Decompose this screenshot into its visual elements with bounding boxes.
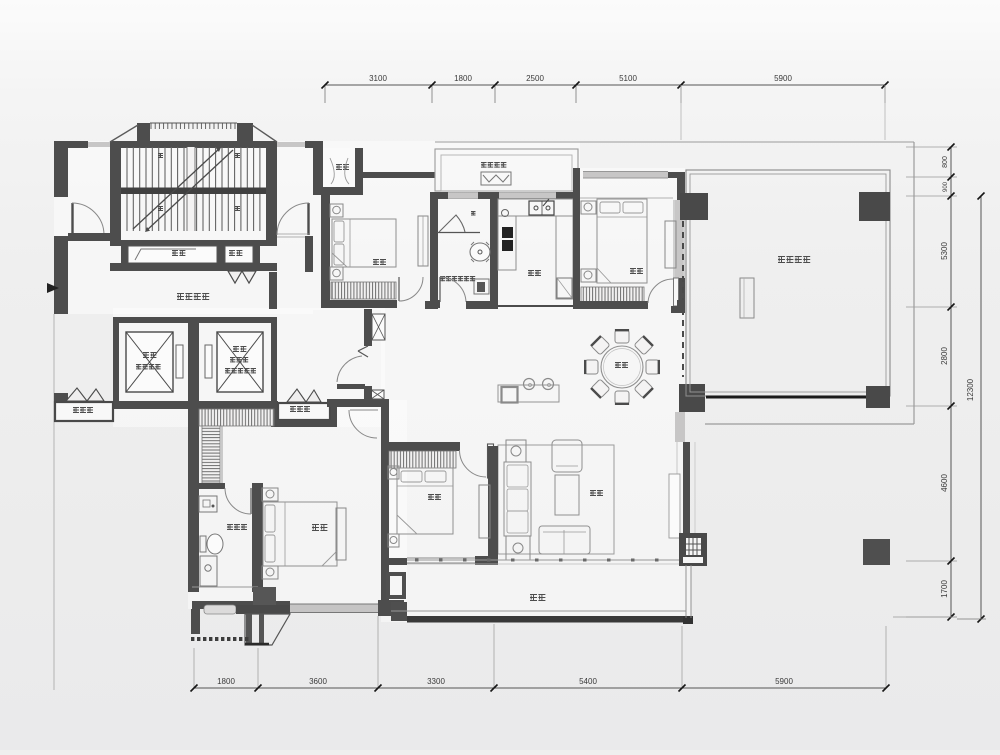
svg-text:1800: 1800 bbox=[454, 74, 472, 83]
svg-text:800: 800 bbox=[942, 156, 949, 168]
svg-text:900: 900 bbox=[943, 181, 949, 192]
svg-text:1800: 1800 bbox=[217, 677, 235, 686]
svg-text:2500: 2500 bbox=[526, 74, 544, 83]
svg-text:5900: 5900 bbox=[774, 74, 792, 83]
svg-text:5300: 5300 bbox=[940, 242, 949, 260]
svg-text:2800: 2800 bbox=[940, 347, 949, 365]
svg-text:12300: 12300 bbox=[966, 378, 975, 401]
svg-text:5100: 5100 bbox=[619, 74, 637, 83]
svg-text:1700: 1700 bbox=[940, 580, 949, 598]
svg-text:5400: 5400 bbox=[579, 677, 597, 686]
svg-text:3300: 3300 bbox=[427, 677, 445, 686]
svg-text:3100: 3100 bbox=[369, 74, 387, 83]
svg-text:5900: 5900 bbox=[775, 677, 793, 686]
svg-text:4600: 4600 bbox=[940, 474, 949, 492]
svg-text:3600: 3600 bbox=[309, 677, 327, 686]
